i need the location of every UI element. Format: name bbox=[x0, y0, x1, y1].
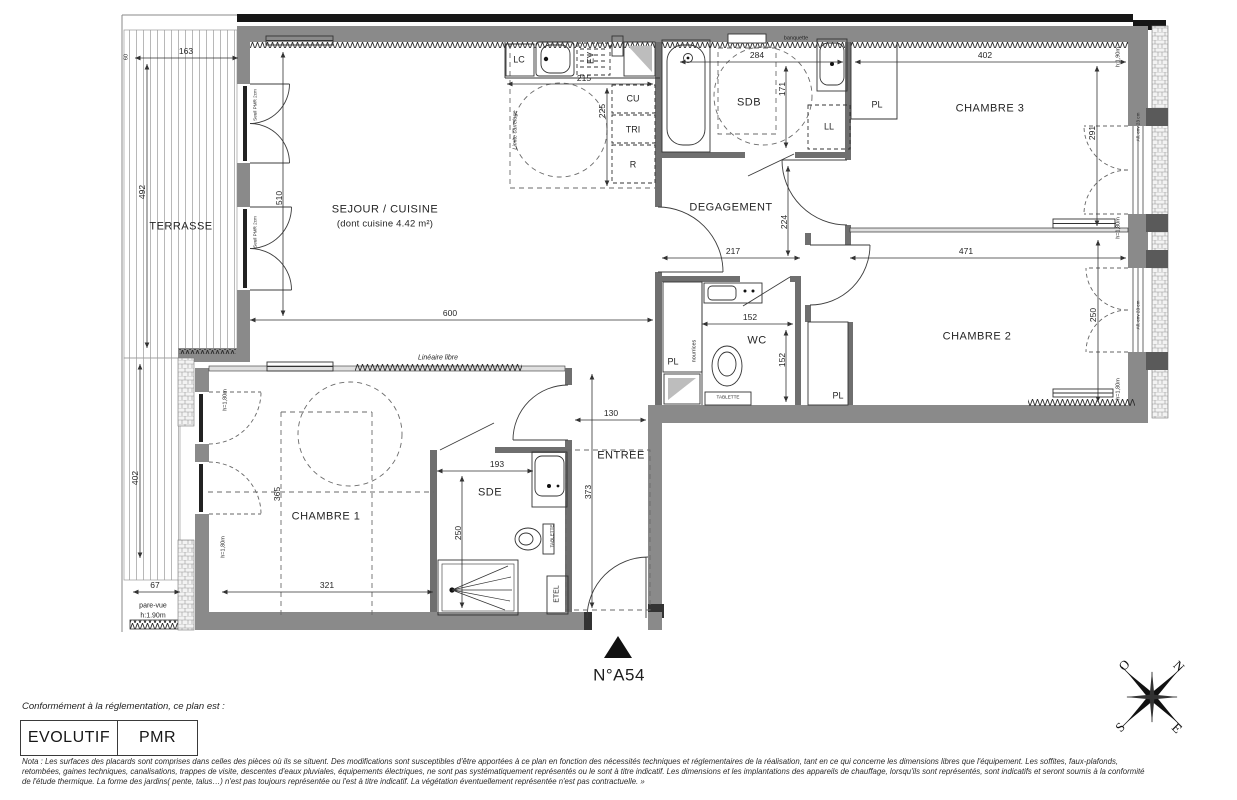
dim-600: 600 bbox=[443, 309, 457, 318]
label-ev: EV bbox=[587, 52, 596, 64]
label-ll: LL bbox=[824, 123, 834, 132]
lineaire-libre-strip bbox=[355, 364, 522, 371]
label-seuil-2: Seuil PMR 2cm bbox=[254, 216, 259, 248]
room-label-chambre1: CHAMBRE 1 bbox=[292, 512, 361, 523]
label-h180-ch2: h=1,80m bbox=[1116, 378, 1122, 400]
dim-373: 373 bbox=[584, 485, 593, 499]
label-h180-ch1-bottom: h=1,80m bbox=[221, 536, 227, 558]
label-banquette: banquette bbox=[784, 36, 808, 42]
dim-510: 510 bbox=[275, 191, 284, 205]
dim-250-ch2: 250 bbox=[1089, 308, 1098, 322]
dim-492: 492 bbox=[138, 185, 147, 199]
room-label-sdb: SDB bbox=[737, 98, 761, 109]
label-pl-chambre3: PL bbox=[871, 101, 882, 110]
label-allenv-ch2: All. env 23 cm bbox=[1137, 301, 1142, 330]
entrance-marker bbox=[604, 636, 632, 658]
compass-rose bbox=[1122, 667, 1182, 727]
room-label-terrasse: TERRASSE bbox=[149, 222, 212, 233]
label-pl-chambre2: PL bbox=[832, 392, 843, 401]
dim-215: 215 bbox=[577, 74, 591, 83]
dim-67: 67 bbox=[150, 581, 159, 590]
dim-224: 224 bbox=[780, 215, 789, 229]
dim-60: 60 bbox=[124, 54, 130, 60]
label-lc: LC bbox=[513, 56, 525, 65]
label-h190: h:1,90m bbox=[1116, 47, 1122, 67]
dim-163: 163 bbox=[179, 47, 193, 56]
dim-402-top: 402 bbox=[978, 51, 992, 60]
label-tablette-sde: TABLETTE bbox=[551, 525, 556, 548]
floor-plan-page: TERRASSE SEJOUR / CUISINE (dont cuisine … bbox=[0, 0, 1237, 800]
dim-152-h: 152 bbox=[743, 313, 757, 322]
dim-284: 284 bbox=[750, 51, 764, 60]
doors bbox=[209, 84, 1128, 618]
label-h180-ch3: h=1,80m bbox=[1116, 217, 1122, 239]
legend-pmr: PMR bbox=[118, 721, 197, 755]
dim-250-sde: 250 bbox=[454, 526, 463, 540]
dim-171: 171 bbox=[778, 82, 787, 96]
pmr-clearances bbox=[208, 44, 812, 616]
nota-line-1: Nota : Les surfaces des placards sont co… bbox=[22, 757, 1118, 766]
label-cu: CU bbox=[627, 95, 640, 104]
label-pare-vue: pare-vue bbox=[139, 603, 167, 610]
banquette-bench bbox=[728, 34, 766, 43]
dim-402-left: 402 bbox=[131, 471, 140, 485]
unit-number: N°A54 bbox=[593, 667, 645, 684]
room-label-chambre2: CHAMBRE 2 bbox=[943, 332, 1012, 343]
nota-line-3: de l'étude thermique. La forme des jardi… bbox=[22, 777, 645, 786]
legend-box: EVOLUTIF PMR bbox=[20, 720, 198, 756]
dim-152-v: 152 bbox=[778, 353, 787, 367]
dim-321: 321 bbox=[320, 581, 334, 590]
legend-evolutif: EVOLUTIF bbox=[21, 721, 118, 755]
label-lineaire-libre: Linéaire libre bbox=[418, 355, 458, 362]
label-h180-ch1-top: h=1,80m bbox=[223, 389, 229, 411]
label-tablette-wc: TABLETTE bbox=[717, 396, 740, 401]
dim-193: 193 bbox=[490, 460, 504, 469]
room-label-wc: WC bbox=[747, 336, 766, 347]
room-label-degagement: DEGAGEMENT bbox=[689, 203, 772, 214]
label-limite-carrelage: Limite carrelage bbox=[513, 110, 519, 149]
nota-line-2: retombées, gaines techniques, canalisati… bbox=[22, 767, 1144, 776]
room-label-sde: SDE bbox=[478, 488, 502, 499]
room-label-chambre3: CHAMBRE 3 bbox=[956, 104, 1025, 115]
dim-217: 217 bbox=[726, 247, 740, 256]
label-pl-wc: PL bbox=[667, 358, 678, 367]
dim-291: 291 bbox=[1088, 126, 1097, 140]
label-nourrices: nourrices bbox=[692, 340, 698, 363]
dim-130: 130 bbox=[604, 409, 618, 418]
dim-225: 225 bbox=[598, 104, 607, 118]
conformity-note: Conformément à la réglementation, ce pla… bbox=[22, 701, 225, 712]
room-label-entree: ENTREE bbox=[597, 451, 645, 462]
room-label-sejour-sub: (dont cuisine 4.42 m²) bbox=[337, 219, 433, 229]
dim-471: 471 bbox=[959, 247, 973, 256]
room-label-sejour: SEJOUR / CUISINE bbox=[332, 205, 438, 216]
pare-vue-screen bbox=[130, 620, 178, 629]
interior-walls bbox=[209, 42, 1128, 612]
kitchen-fixtures bbox=[505, 36, 660, 183]
label-pare-vue-h: h:1.90m bbox=[140, 613, 165, 620]
label-r: R bbox=[630, 161, 637, 170]
label-allenv-ch3: All. env 23 cm bbox=[1137, 113, 1142, 142]
label-seuil-1: Seuil PMR 2cm bbox=[254, 89, 259, 121]
dim-365: 365 bbox=[273, 487, 282, 501]
label-etel: ETEL bbox=[554, 585, 561, 603]
label-tri: TRI bbox=[626, 126, 641, 135]
